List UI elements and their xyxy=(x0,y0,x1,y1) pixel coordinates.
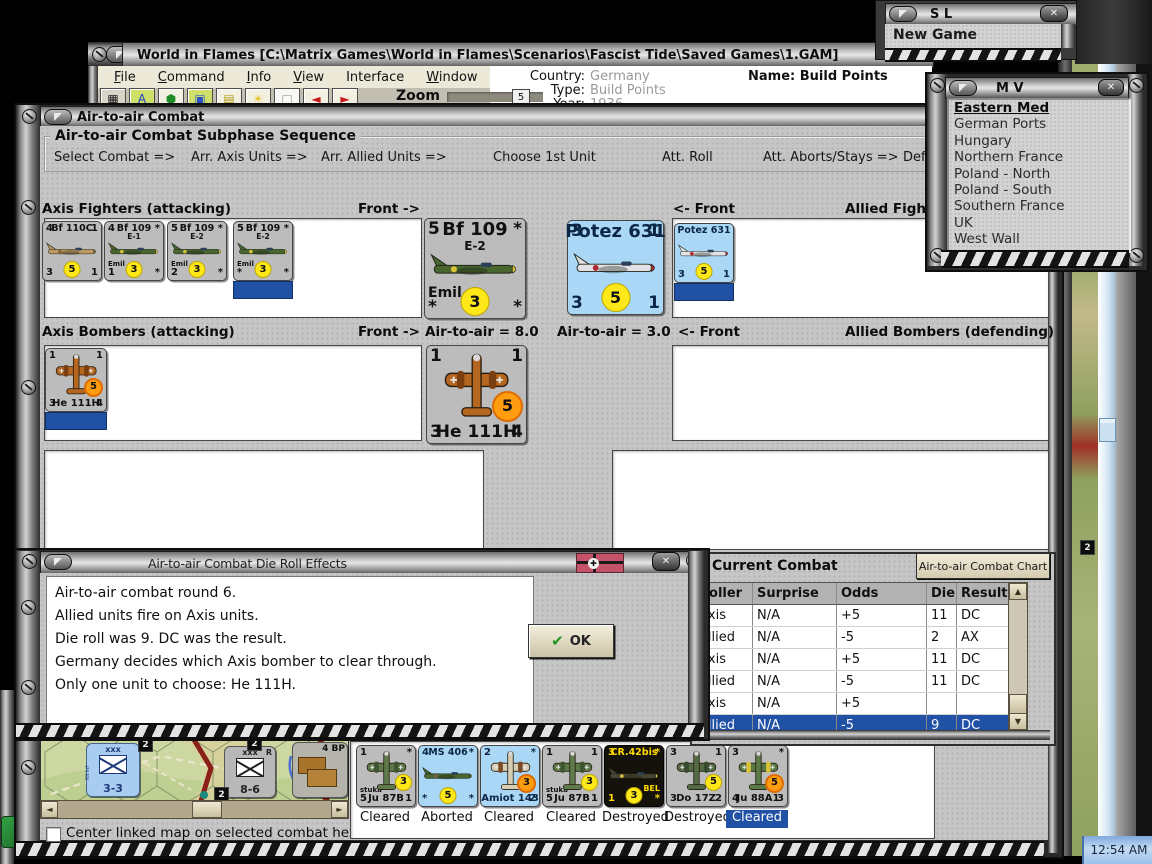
table-cell: N/A xyxy=(753,649,837,670)
menu-item-file[interactable]: File xyxy=(114,70,136,85)
dialog-line: Only one unit to choose: He 111H. xyxy=(55,674,525,697)
counter-br: * xyxy=(284,268,289,278)
screw-icon xyxy=(21,380,36,395)
unit-status: Cleared xyxy=(726,810,788,828)
counter-bname: Do 17Z xyxy=(676,794,716,804)
aircraft-icon xyxy=(171,238,223,262)
sl-body: New Game xyxy=(885,24,1061,48)
menu-item-info[interactable]: Info xyxy=(247,70,272,85)
counter-nm: Bf 109 xyxy=(442,221,507,239)
table-cell: +5 xyxy=(837,693,927,714)
strength-badge: 5 xyxy=(601,283,630,312)
front-right-label: Front -> xyxy=(358,201,420,217)
mv-bottom-edge xyxy=(941,250,1129,268)
desktop: 2 2 World in Flames [C:\Matrix Games\Wor… xyxy=(0,0,1152,864)
counter-bl: 5 xyxy=(360,794,367,804)
table-cell: +5 xyxy=(837,649,927,670)
table-scroll-up-button[interactable]: ▲ xyxy=(1009,583,1027,600)
strength-badge: 3 xyxy=(626,787,643,804)
strength-badge: 5 xyxy=(84,378,103,397)
dialog-text-area: Air-to-air combat round 6. Allied units … xyxy=(46,576,534,728)
table-cell: +5 xyxy=(837,605,927,626)
mv-left-edge xyxy=(927,74,947,266)
dialog-right-edge xyxy=(688,551,704,723)
sequence-step-3: Arr. Allied Units => xyxy=(321,150,447,165)
strength-badge: 3 xyxy=(461,287,490,316)
mv-list-item[interactable]: German Ports xyxy=(949,116,1129,132)
counter-br: 1 xyxy=(91,268,98,278)
dialog-line: Germany decides which Axis bomber to cle… xyxy=(55,651,525,674)
aircraft-icon xyxy=(608,762,660,787)
strength-badge: 5 xyxy=(64,261,81,278)
sl-minimize-button[interactable] xyxy=(889,6,917,22)
screw-icon xyxy=(930,78,945,93)
aircraft-icon xyxy=(237,238,289,262)
combat-chart-button[interactable]: Air-to-air Combat Chart xyxy=(916,553,1050,579)
unit-counter-potez-631[interactable]: 31Potez 63131 5 xyxy=(567,220,664,315)
screw-icon xyxy=(21,760,36,775)
allied-bombers-box[interactable] xyxy=(672,345,1049,441)
german-flag-icon: ✚ xyxy=(576,553,624,573)
counter-bl: 3 xyxy=(571,295,583,312)
unit-counter-do-17z[interactable]: 313Do 17Z2 5 xyxy=(666,745,726,807)
map-unit-counter[interactable]: xxxXII Inf3-3 xyxy=(86,743,140,797)
sequence-title: Air-to-air Combat Subphase Sequence xyxy=(50,128,361,144)
dialog-minimize-button[interactable] xyxy=(44,554,72,570)
counter-bname: Ju 87B xyxy=(554,794,590,804)
ok-button-label: OK xyxy=(570,634,591,649)
unit-counter-he-111h[interactable]: 113He 111H4 5 xyxy=(426,345,527,444)
counter-nm: Potez 631 xyxy=(565,223,666,241)
front-left-label-2: <- Front xyxy=(678,324,740,340)
screw-icon xyxy=(22,554,37,569)
table-row[interactable]: AlliedN/A-511DC xyxy=(695,671,1009,693)
arrow-left-icon[interactable]: ◄ xyxy=(303,88,329,103)
mv-list-item[interactable]: Eastern Med xyxy=(949,100,1129,116)
counter-bname: He 111H xyxy=(52,399,100,409)
table-cell: 11 xyxy=(927,605,957,626)
screw-icon xyxy=(21,680,36,695)
aircraft-icon xyxy=(430,246,520,288)
table-cell: 11 xyxy=(927,671,957,692)
menu-bar: FileCommandInfoViewInterfaceWindowDebugH… xyxy=(98,66,506,89)
unit-counter-potez-631[interactable]: Potez 63131 5 xyxy=(674,223,734,283)
table-cell: N/A xyxy=(753,671,837,692)
unit-status: Cleared xyxy=(354,810,416,828)
unit-counter-bf-109[interactable]: 5*Bf 109E-2Emil2* 3 xyxy=(167,221,227,281)
counter-br: * xyxy=(513,299,522,316)
background-scrollbar-thumb[interactable] xyxy=(1099,418,1116,442)
sl-item-new-game[interactable]: New Game xyxy=(893,27,977,43)
screw-icon xyxy=(21,600,36,615)
map-scroll-right-button[interactable]: ► xyxy=(331,801,348,818)
selection-bar xyxy=(674,283,734,301)
counter-br: 1 xyxy=(723,270,730,280)
table-cell xyxy=(957,693,1009,714)
dialog-line: Allied units fire on Axis units. xyxy=(55,605,525,628)
strength-badge: 5 xyxy=(492,391,523,422)
unit-counter-ms-406[interactable]: 4*MS 406** 5 xyxy=(418,745,478,807)
screw-icon xyxy=(1129,248,1144,263)
aircraft-icon xyxy=(46,238,98,262)
sl-bottom-edge xyxy=(885,48,1061,62)
country-label: Country: xyxy=(500,69,585,84)
unit-status: Destroyed xyxy=(602,810,664,828)
clock-text: 12:54 AM xyxy=(1091,843,1148,857)
counter-tr: * xyxy=(155,224,160,234)
strength-badge: 5 xyxy=(440,787,457,804)
mv-location-list[interactable]: Eastern MedGerman PortsHungaryNorthern F… xyxy=(947,98,1131,253)
mv-list-item[interactable]: Hungary xyxy=(949,133,1129,149)
counter-br: 3 xyxy=(777,794,784,804)
map-unit-counter[interactable]: 4 BP xyxy=(292,742,348,798)
mv-list-item[interactable]: Poland - North xyxy=(949,166,1129,182)
strength-badge: 3 xyxy=(517,774,536,793)
unit-counter-cr-42bis[interactable]: 3*CR.42bisBEL1* 3 xyxy=(604,745,664,807)
center-map-checkbox[interactable] xyxy=(46,827,61,842)
main-window-title: World in Flames [C:\Matrix Games\World i… xyxy=(123,48,838,63)
hex-control-marker: 2 xyxy=(1080,540,1095,555)
counter-bl: 5 xyxy=(546,794,553,804)
counter-br: 2 xyxy=(529,794,536,804)
screw-icon xyxy=(21,200,36,215)
unit-counter-ju-87b[interactable]: 11stuka5Ju 87B1 3 xyxy=(542,745,602,807)
table-cell: DC xyxy=(957,671,1009,692)
counter-tl: 4 xyxy=(108,224,115,234)
strength-badge: 5 xyxy=(765,774,784,793)
selection-bar xyxy=(45,412,107,430)
table-cell xyxy=(927,693,957,714)
mv-close-button[interactable] xyxy=(1098,79,1124,96)
ok-button[interactable]: OK xyxy=(528,624,614,658)
counter-nm: Bf 110C xyxy=(51,224,92,234)
counter-tr: * xyxy=(218,224,223,234)
sequence-step-6: Att. Aborts/Stays => xyxy=(763,150,899,165)
name-text: Name: Build Points xyxy=(748,69,888,84)
unit-counter-ju-88a1[interactable]: 3*4Ju 88A13 5 xyxy=(728,745,788,807)
table-cell: N/A xyxy=(753,627,837,648)
allied-bombers-label: Allied Bombers (defending) xyxy=(845,324,1054,340)
strength-badge: 3 xyxy=(395,774,412,791)
unit-counter-bf-109[interactable]: 4*Bf 109E-1Emil1* 3 xyxy=(104,221,164,281)
counter-bl: * xyxy=(237,268,242,278)
menu-item-view[interactable]: View xyxy=(293,70,324,85)
notes-icon[interactable]: ▤ xyxy=(216,88,242,103)
dialog-bottom-edge xyxy=(16,723,704,739)
mv-minimize-button[interactable] xyxy=(949,80,977,96)
table-cell: N/A xyxy=(753,605,837,626)
screw-icon xyxy=(92,47,107,62)
strength-badge: 3 xyxy=(255,261,272,278)
aircraft-icon xyxy=(678,240,730,264)
menu-item-command[interactable]: Command xyxy=(158,70,225,85)
counter-tr: * xyxy=(513,221,522,238)
unit-counter-bf-109[interactable]: 5*Bf 109E-2Emil** 3 xyxy=(424,218,526,319)
current-combat-bottom-edge xyxy=(692,730,1050,740)
table-cell: 11 xyxy=(927,649,957,670)
allied-air-value: Air-to-air = 3.0 xyxy=(557,324,671,340)
counter-br: 1 xyxy=(648,295,660,312)
map-scrollbar-thumb[interactable] xyxy=(192,801,222,818)
aircraft-icon xyxy=(573,246,659,285)
front-right-label-2: Front -> xyxy=(358,324,420,340)
table-header-result: Result xyxy=(957,583,1009,604)
combat-log-table[interactable]: RollerSurpriseOddsDieResult AxisN/A+511D… xyxy=(694,582,1010,731)
table-row[interactable]: AxisN/A+5 xyxy=(695,693,1009,715)
table-cell: -5 xyxy=(837,627,927,648)
counter-tl: 5 xyxy=(171,224,178,234)
strength-badge: 3 xyxy=(581,774,598,791)
counter-nm: CR.42bis xyxy=(610,748,657,758)
counter-br: * xyxy=(469,794,474,804)
info-panel: Country: Germany Type: Build Points Year… xyxy=(490,66,932,103)
main-window-left-edge xyxy=(88,66,98,104)
strength-badge: 3 xyxy=(126,261,143,278)
screw-icon xyxy=(22,109,37,124)
table-header-die: Die xyxy=(927,583,957,604)
aircraft-icon xyxy=(422,762,474,787)
unit-status: Cleared xyxy=(478,810,540,828)
map-scroll-left-button[interactable]: ◄ xyxy=(41,801,58,818)
combat-title-bar[interactable]: Air-to-air Combat xyxy=(40,106,1046,128)
counter-tr: * xyxy=(469,748,474,758)
letter-a-icon[interactable]: A xyxy=(129,88,155,103)
sequence-step-2: Arr. Axis Units => xyxy=(191,150,308,165)
combat-chart-button-label: Air-to-air Combat Chart xyxy=(919,560,1047,573)
strength-badge: 3 xyxy=(189,261,206,278)
counter-bname: He 111H xyxy=(436,424,517,441)
mv-list-item[interactable]: Northern France xyxy=(949,149,1129,165)
table-cell: DC xyxy=(957,605,1009,626)
table-row[interactable]: AxisN/A+511DC xyxy=(695,605,1009,627)
zoom-label: Zoom xyxy=(396,88,440,104)
table-cell: 2 xyxy=(927,627,957,648)
screw-icon xyxy=(1129,78,1144,93)
mv-list-item[interactable]: UK xyxy=(949,215,1129,231)
table-scroll-down-button[interactable]: ▼ xyxy=(1009,713,1027,730)
counter-tr: * xyxy=(531,748,536,758)
background-topright-block xyxy=(1075,0,1152,64)
unit-status: Cleared xyxy=(540,810,602,828)
counter-nm: Potez 631 xyxy=(677,226,730,236)
strength-badge: 5 xyxy=(705,774,722,791)
main-title-bar[interactable]: World in Flames [C:\Matrix Games\World i… xyxy=(122,42,934,68)
current-combat-title: Current Combat xyxy=(712,558,838,574)
train-icon[interactable]: ▦ xyxy=(100,88,126,103)
counter-br: 1 xyxy=(591,794,598,804)
aircraft-icon xyxy=(108,238,160,262)
sequence-step-5: Att. Roll xyxy=(662,150,713,165)
counter-bl: * xyxy=(422,794,427,804)
unit-counter-he-111h[interactable]: 113He 111H4 5 xyxy=(45,348,107,412)
counter-bl: 3 xyxy=(46,268,53,278)
combat-minimize-button[interactable] xyxy=(44,109,72,125)
combat-bottom-edge xyxy=(16,841,1044,858)
counter-br: * xyxy=(155,268,160,278)
unit-counter-bf-109[interactable]: 5*Bf 109E-2Emil** 3 xyxy=(233,221,293,281)
mv-list-item[interactable]: Southern France xyxy=(949,198,1129,214)
table-cell: AX xyxy=(957,627,1009,648)
counter-br: * xyxy=(218,268,223,278)
unit-status: Aborted xyxy=(416,810,478,828)
unit-counter-amiot-143[interactable]: 2*Amiot 1432 3 xyxy=(480,745,540,807)
menu-item-window[interactable]: Window xyxy=(426,70,477,85)
table-row[interactable]: AlliedN/A-52AX xyxy=(695,627,1009,649)
dialog-line: Die roll was 9. DC was the result. xyxy=(55,628,525,651)
counter-tl: 5 xyxy=(237,224,244,234)
counter-tl: 5 xyxy=(428,221,440,238)
unit-counter-bf-110c[interactable]: 41Bf 110C31 5 xyxy=(42,221,102,281)
center-map-checkbox-label: Center linked map on selected combat hex xyxy=(66,825,357,841)
counter-br: * xyxy=(655,794,660,804)
counter-tr: * xyxy=(407,748,412,758)
mv-list-item[interactable]: Poland - South xyxy=(949,182,1129,198)
counter-bl: 1 xyxy=(108,268,115,278)
sequence-step-1: Select Combat => xyxy=(54,150,175,165)
counter-br: 4 xyxy=(511,424,523,441)
counter-br: 4 xyxy=(96,399,103,409)
counter-br: 2 xyxy=(715,794,722,804)
sl-close-button[interactable] xyxy=(1040,5,1068,22)
menu-item-interface[interactable]: Interface xyxy=(346,70,404,85)
table-scrollbar-thumb[interactable] xyxy=(1009,694,1027,714)
table-cell: N/A xyxy=(753,693,837,714)
counter-tr: * xyxy=(779,748,784,758)
axis-bombers-label: Axis Bombers (attacking) xyxy=(42,324,235,340)
dialog-close-button[interactable] xyxy=(652,552,680,571)
dialog-line: Air-to-air combat round 6. xyxy=(55,582,525,605)
counter-br: 1 xyxy=(405,794,412,804)
arrow-right-icon[interactable]: ► xyxy=(332,88,358,103)
table-header-odds: Odds xyxy=(837,583,927,604)
selection-bar xyxy=(233,281,293,299)
counter-bl: 3 xyxy=(678,270,685,280)
blank-icon[interactable]: □ xyxy=(274,88,300,103)
table-row[interactable]: AxisN/A+511DC xyxy=(695,649,1009,671)
map-window-icon[interactable]: ▣ xyxy=(187,88,213,103)
unit-status: Destroyed xyxy=(664,810,726,828)
map-unit-counter[interactable]: xxxR8-6 xyxy=(224,746,276,798)
counter-bl: 2 xyxy=(171,268,178,278)
counter-tr: * xyxy=(284,224,289,234)
table-header-surprise: Surprise xyxy=(753,583,837,604)
strength-badge: 5 xyxy=(696,263,713,280)
allied-cleared-box[interactable] xyxy=(612,450,1049,550)
axis-cleared-box[interactable] xyxy=(44,450,484,550)
counter-nm: MS 406 xyxy=(428,748,467,758)
axis-fighters-label: Axis Fighters (attacking) xyxy=(42,201,231,217)
axis-air-value: Air-to-air = 8.0 xyxy=(425,324,539,340)
type-value: Build Points xyxy=(590,83,666,98)
unit-counter-ju-87b[interactable]: 1*stuka5Ju 87B1 3 xyxy=(356,745,416,807)
counter-bl: 1 xyxy=(608,794,615,804)
sl-right-edge xyxy=(1061,24,1075,48)
table-cell: -5 xyxy=(837,671,927,692)
country-value: Germany xyxy=(590,69,650,84)
dialog-left-edge xyxy=(16,551,40,723)
table-cell: DC xyxy=(957,649,1009,670)
counter-bl: * xyxy=(428,299,437,316)
dialog-title: Air-to-air Combat Die Roll Effects xyxy=(148,556,347,571)
sequence-step-4: Choose 1st Unit xyxy=(493,150,596,165)
counter-bname: Ju 88A1 xyxy=(737,794,780,804)
counter-bname: Ju 87B xyxy=(368,794,404,804)
front-left-label: <- Front xyxy=(673,201,735,217)
sun-icon[interactable]: ☀ xyxy=(245,88,271,103)
mv-list-item[interactable]: West Wall xyxy=(949,231,1129,247)
shield-icon[interactable]: ⬢ xyxy=(158,88,184,103)
taskbar-clock[interactable]: 12:54 AM xyxy=(1082,836,1152,864)
